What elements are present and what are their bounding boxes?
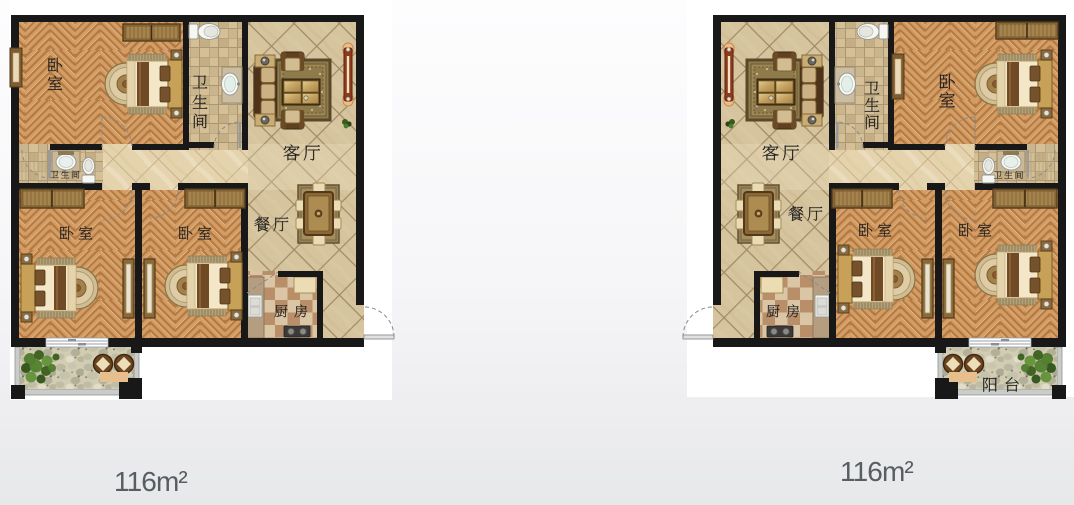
svg-text:116m²: 116m² [114,466,187,497]
svg-text:116m²: 116m² [840,456,913,487]
